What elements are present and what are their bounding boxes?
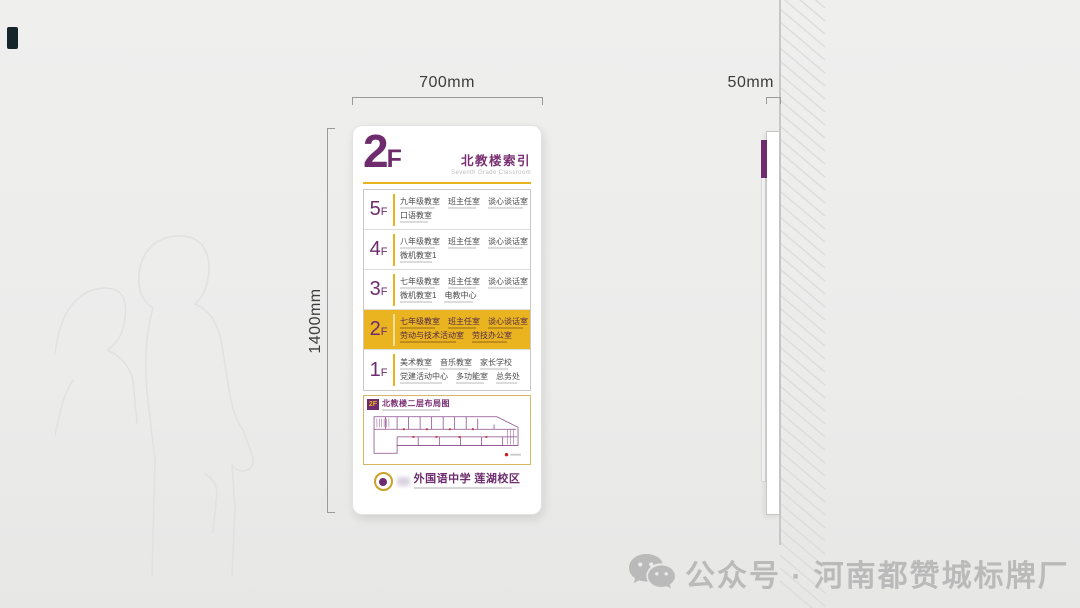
room-label: 电教中心 <box>444 291 476 303</box>
you-are-here-marker <box>505 453 508 456</box>
dimension-width-bracket <box>352 97 543 105</box>
header-divider <box>363 182 531 184</box>
sign-side-profile <box>766 131 780 515</box>
room-label-english-caption <box>400 301 432 303</box>
sign-header: 2F 北教楼索引 Seventh Grade Classroom <box>363 133 531 179</box>
room-label: 多功能室 <box>456 372 488 384</box>
wall-section <box>775 0 845 608</box>
room-label: 劳动与技术活动室 <box>400 331 464 343</box>
room-label: 家长学校 <box>480 358 512 370</box>
floor-row: 2F 七年级教室班主任室谈心谈话室劳动与技术活动室劳技办公室 <box>364 310 530 350</box>
floor-rows: 5F 九年级教室班主任室谈心谈话室口语教室 4F 八年级教室班主任室谈心谈话室微… <box>363 189 531 391</box>
floor-row-rooms: 美术教室音乐教室家长学校党建活动中心多功能室总务处 <box>395 355 530 386</box>
dimension-depth-bracket <box>766 97 781 104</box>
floor-row: 5F 九年级教室班主任室谈心谈话室口语教室 <box>364 190 530 230</box>
watermark: 公众号 · 河南都赞城标牌厂 <box>628 551 1070 595</box>
room-label-english-caption <box>400 221 428 223</box>
floor-row: 3F 七年级教室班主任室谈心谈话室微机教室1电教中心 <box>364 270 530 310</box>
floor-plan-box: 2F 北教楼二层布局图 <box>363 395 531 465</box>
watermark-text: 公众号 · 河南都赞城标牌厂 <box>685 551 1070 595</box>
room-label: 九年级教室 <box>400 197 440 209</box>
dimension-depth-label: 50mm <box>690 74 774 92</box>
room-label-english-caption <box>400 382 442 384</box>
school-emblem-icon <box>374 472 393 491</box>
room-label: 谈心谈话室 <box>488 197 528 209</box>
room-label-english-caption <box>400 341 456 343</box>
floor-row-rooms: 九年级教室班主任室谈心谈话室口语教室 <box>395 194 530 225</box>
room-label-english-caption <box>448 207 476 209</box>
plan-title: 北教楼二层布局图 <box>382 399 450 408</box>
room-label-english-caption <box>448 247 476 249</box>
floor-directory-sign: 2F 北教楼索引 Seventh Grade Classroom 5F 九年级教… <box>352 125 542 515</box>
room-label-english-caption <box>488 327 523 329</box>
room-label-english-caption <box>400 327 435 329</box>
room-label-english-caption <box>400 247 435 249</box>
plan-legend-caption <box>510 454 521 456</box>
room-label: 七年级教室 <box>400 277 440 289</box>
floor-row-rooms: 七年级教室班主任室谈心谈话室微机教室1电教中心 <box>395 274 530 305</box>
floor-number-digit: 2 <box>363 125 387 177</box>
room-label: 微机教室1 <box>400 291 436 303</box>
floor-row: 4F 八年级教室班主任室谈心谈话室微机教室1 <box>364 230 530 270</box>
dimension-height-label: 1400mm <box>307 271 325 371</box>
room-label: 班主任室 <box>448 197 480 209</box>
room-label: 党建活动中心 <box>400 372 448 384</box>
room-label: 微机教室1 <box>400 251 436 263</box>
human-silhouette <box>55 228 265 588</box>
sign-title: 北教楼索引 <box>451 150 531 169</box>
room-label: 班主任室 <box>448 317 480 329</box>
room-label-english-caption <box>400 287 435 289</box>
room-label-english-caption <box>480 368 508 370</box>
room-label-english-caption <box>488 287 523 289</box>
room-label-english-caption <box>444 301 472 303</box>
room-label-english-caption <box>448 327 476 329</box>
floor-plan-drawing <box>367 411 527 459</box>
floor-row-number: 2F <box>364 318 393 341</box>
floor-number-suffix: F <box>387 145 402 173</box>
room-label-english-caption <box>456 382 484 384</box>
room-label: 劳技办公室 <box>472 331 512 343</box>
room-label-english-caption <box>400 207 435 209</box>
floor-row-rooms: 七年级教室班主任室谈心谈话室劳动与技术活动室劳技办公室 <box>395 314 530 345</box>
plan-title-caption <box>382 409 440 411</box>
redacted-school-name <box>397 477 410 486</box>
room-label: 总务处 <box>496 372 520 384</box>
plan-floor-badge: 2F <box>367 399 379 410</box>
room-label: 口语教室 <box>400 211 432 223</box>
floor-row-number: 4F <box>364 238 393 261</box>
sign-side-header-stripe <box>761 140 767 178</box>
wechat-icon <box>628 552 676 594</box>
room-label-english-caption <box>400 368 428 370</box>
school-name: 外国语中学 莲湖校区 <box>414 474 521 485</box>
room-label-english-caption <box>496 382 517 384</box>
floor-row: 1F 美术教室音乐教室家长学校党建活动中心多功能室总务处 <box>364 350 530 390</box>
room-label-english-caption <box>440 368 468 370</box>
floor-row-number: 3F <box>364 278 393 301</box>
room-label: 七年级教室 <box>400 317 440 329</box>
room-label-english-caption <box>448 287 476 289</box>
room-label: 班主任室 <box>448 277 480 289</box>
current-floor-number: 2F <box>363 131 402 179</box>
room-label-english-caption <box>400 261 432 263</box>
room-label: 谈心谈话室 <box>488 237 528 249</box>
room-label-english-caption <box>488 247 523 249</box>
room-label: 谈心谈话室 <box>488 317 528 329</box>
corner-mark <box>7 27 18 49</box>
sign-subtitle: Seventh Grade Classroom <box>451 170 531 176</box>
floor-row-number: 5F <box>364 198 393 221</box>
room-label-english-caption <box>488 207 523 209</box>
dimension-height-bracket <box>327 128 335 513</box>
room-label-english-caption <box>472 341 507 343</box>
school-name-caption <box>414 487 512 489</box>
floor-row-rooms: 八年级教室班主任室谈心谈话室微机教室1 <box>395 234 530 265</box>
design-mockup-canvas: 700mm 50mm 1400mm 2F 北教楼索引 Seventh Grade… <box>0 0 1080 608</box>
floor-row-number: 1F <box>364 359 393 382</box>
dimension-width-label: 700mm <box>352 74 542 92</box>
room-label: 音乐教室 <box>440 358 472 370</box>
room-label: 美术教室 <box>400 358 432 370</box>
school-logo-row: 外国语中学 莲湖校区 <box>363 472 531 491</box>
room-label: 八年级教室 <box>400 237 440 249</box>
room-label: 谈心谈话室 <box>488 277 528 289</box>
room-label: 班主任室 <box>448 237 480 249</box>
